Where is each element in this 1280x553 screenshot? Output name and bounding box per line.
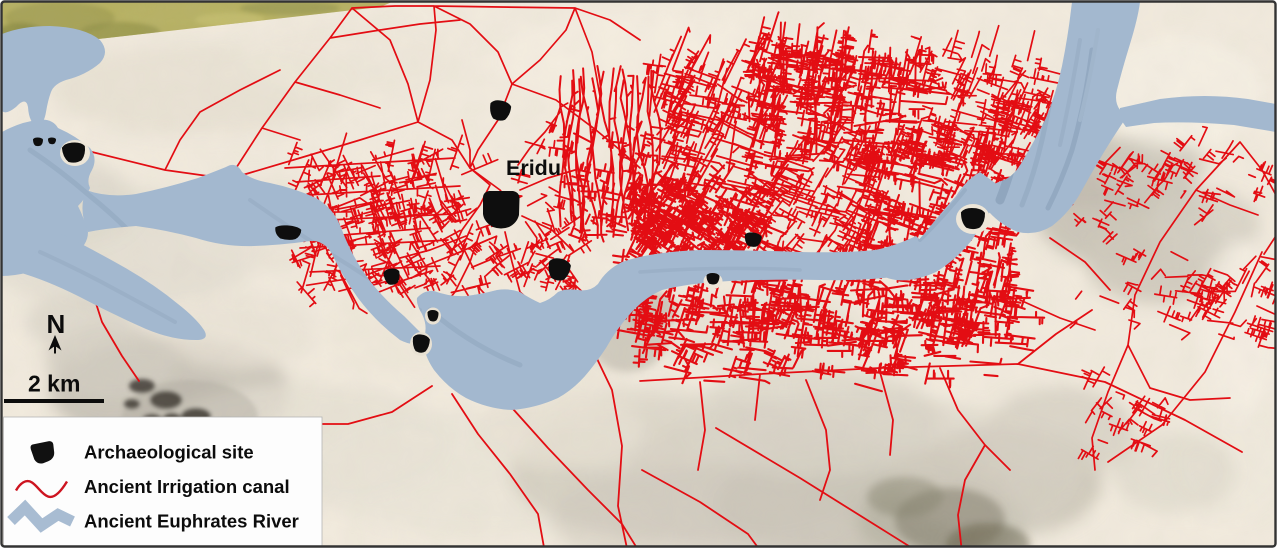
svg-text:Ancient Euphrates River: Ancient Euphrates River [84, 511, 299, 532]
svg-text:2 km: 2 km [28, 371, 80, 397]
svg-text:N: N [47, 309, 66, 339]
svg-text:Eridu: Eridu [506, 156, 561, 180]
svg-text:Ancient Irrigation canal: Ancient Irrigation canal [84, 476, 290, 497]
svg-text:Archaeological site: Archaeological site [84, 442, 254, 463]
